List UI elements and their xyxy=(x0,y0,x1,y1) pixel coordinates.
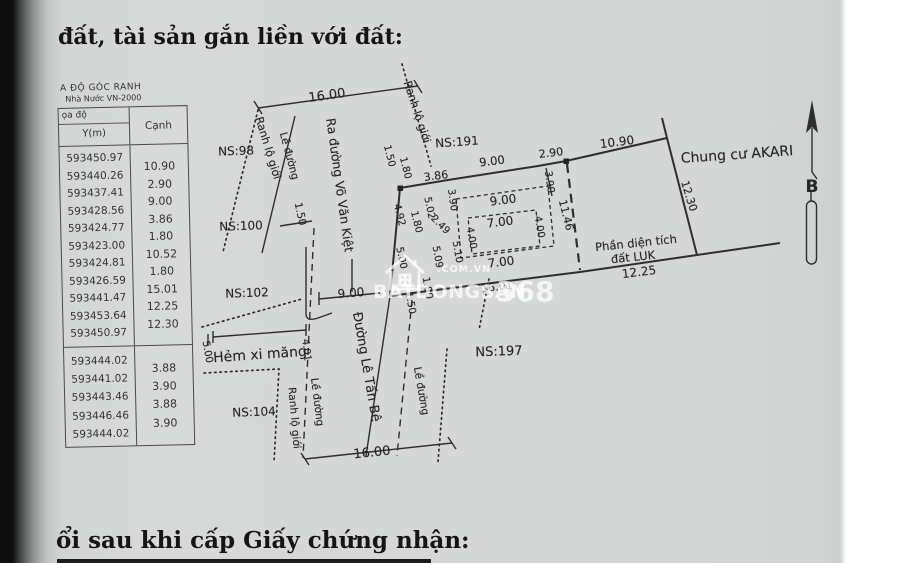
drawing-label-50: B xyxy=(806,177,819,197)
boundary-dotted-lines xyxy=(202,64,489,462)
drawing-label-6: NS:98 xyxy=(218,143,254,158)
drawing-label-43: 4.01 xyxy=(299,338,312,361)
footer-title: ổi sau khi cấp Giấy chứng nhận: xyxy=(56,527,470,554)
drawing-label-8: NS:102 xyxy=(225,285,269,301)
drawing-label-9: NS:104 xyxy=(232,404,276,420)
watermark-domain: .COM.VN xyxy=(437,264,491,275)
footer-rule xyxy=(57,559,431,563)
scanned-land-certificate-page: đất, tài sản gắn liền với đất: A ĐỘ GÓC … xyxy=(0,0,903,563)
drawing-label-7: NS:100 xyxy=(219,218,263,234)
watermark-number: 368 xyxy=(496,275,554,308)
drawing-label-44: 9.00 xyxy=(337,285,365,301)
drawing-label-11: NS:197 xyxy=(475,344,523,361)
